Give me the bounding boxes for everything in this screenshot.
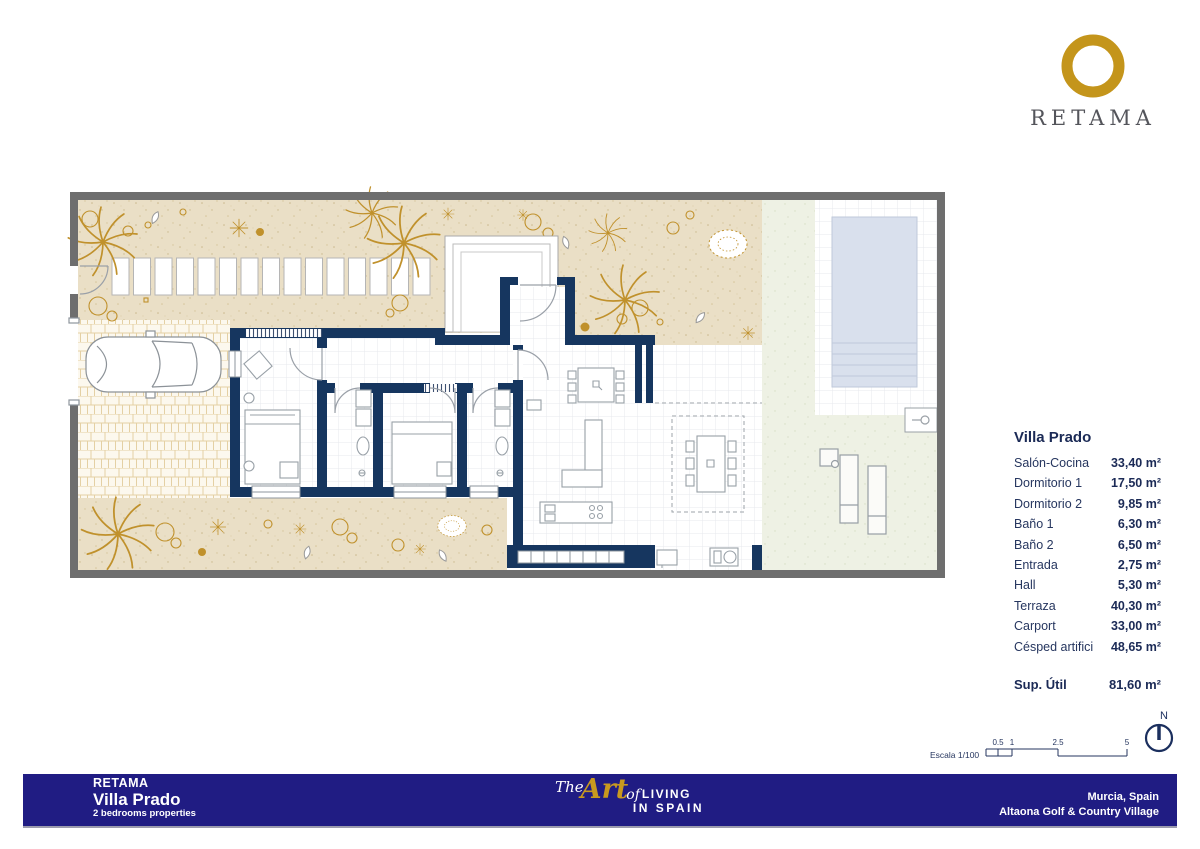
footer-resort: Altaona Golf & Country Village bbox=[999, 805, 1159, 820]
svg-text:1: 1 bbox=[1010, 738, 1015, 747]
outdoor-dining-icon bbox=[686, 436, 736, 492]
room-row: Baño 1 6,30 m² bbox=[1014, 517, 1161, 537]
svg-text:0.5: 0.5 bbox=[992, 738, 1004, 747]
dining-table-icon bbox=[568, 368, 624, 403]
scale-bar: Escala 1/100 0.5 1 2.5 5 N bbox=[925, 705, 1185, 765]
outdoor-shower-icon bbox=[905, 408, 937, 432]
footer-company: RETAMA bbox=[93, 777, 196, 791]
scale-label: Escala 1/100 bbox=[930, 750, 979, 760]
room-row: Dormitorio 2 9,85 m² bbox=[1014, 497, 1161, 517]
bbq-icon bbox=[710, 548, 738, 566]
car-icon bbox=[86, 331, 221, 398]
room-row: Entrada 2,75 m² bbox=[1014, 558, 1161, 578]
north-arrow-icon: N bbox=[1146, 710, 1172, 751]
footer-project: Villa Prado bbox=[93, 791, 196, 809]
room-row: Baño 2 6,50 m² bbox=[1014, 538, 1161, 558]
svg-text:2.5: 2.5 bbox=[1052, 738, 1064, 747]
room-row: Carport 33,00 m² bbox=[1014, 619, 1161, 639]
room-total: Sup. Útil 81,60 m² bbox=[1014, 677, 1161, 692]
footer-project-block: RETAMA Villa Prado 2 bedrooms properties bbox=[93, 777, 196, 819]
room-schedule: Villa Prado Salón-Cocina 33,40 m² Dormit… bbox=[1014, 429, 1161, 692]
footer-city: Murcia, Spain bbox=[999, 790, 1159, 805]
footer-bar: RETAMA Villa Prado 2 bedrooms properties… bbox=[23, 774, 1177, 828]
footer-location: Murcia, Spain Altaona Golf & Country Vil… bbox=[999, 790, 1159, 820]
pool bbox=[832, 217, 917, 387]
svg-text:5: 5 bbox=[1125, 738, 1130, 747]
room-row: Dormitorio 1 17,50 m² bbox=[1014, 476, 1161, 496]
plan-sheet: RETAMA Villa Prado Salón-Cocina 33,40 m²… bbox=[0, 0, 1200, 849]
svg-text:N: N bbox=[1160, 710, 1168, 722]
room-schedule-title: Villa Prado bbox=[1014, 429, 1161, 446]
footer-subtitle: 2 bedrooms properties bbox=[93, 809, 196, 819]
bed-icon bbox=[392, 422, 452, 484]
kitchen-counter-icon bbox=[540, 502, 612, 523]
room-row: Césped artifici 48,65 m² bbox=[1014, 640, 1161, 660]
stepping-stones bbox=[112, 258, 430, 295]
room-row: Terraza 40,30 m² bbox=[1014, 599, 1161, 619]
brand-wordmark: RETAMA bbox=[1023, 106, 1163, 130]
brand-logo: RETAMA bbox=[1023, 28, 1163, 130]
room-row: Salón-Cocina 33,40 m² bbox=[1014, 456, 1161, 476]
footer-tagline: The Art of LIVING IN SPAIN bbox=[528, 776, 718, 815]
ring-logo-icon bbox=[1053, 28, 1133, 100]
room-row: Hall 5,30 m² bbox=[1014, 578, 1161, 598]
